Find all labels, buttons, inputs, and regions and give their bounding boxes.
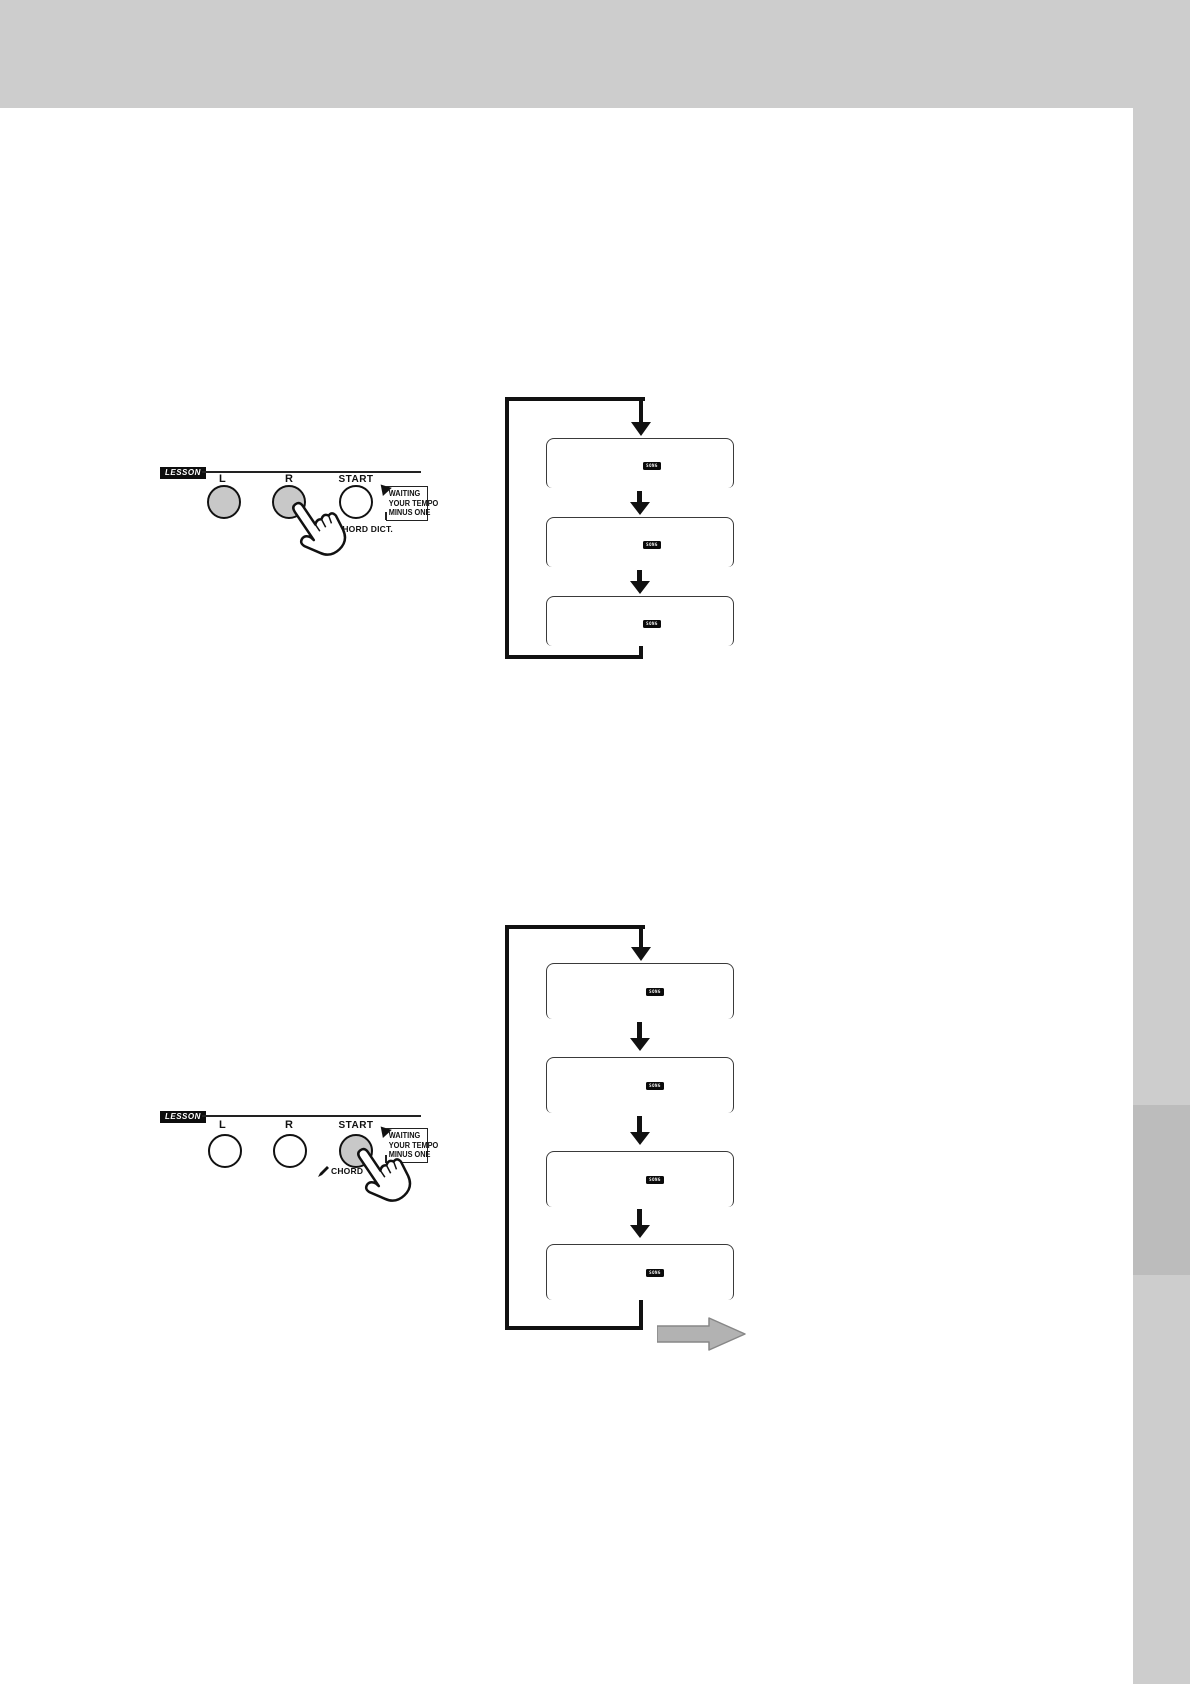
song-badge: SONG (643, 462, 661, 470)
song-badge: SONG (646, 988, 664, 996)
loop-line-left (505, 397, 509, 659)
hand-cursor-icon (338, 1148, 416, 1230)
flow-arrow-shaft (637, 1209, 642, 1225)
panel-top-rule (202, 471, 421, 473)
manual-page: LESSON L R START CHORD DICT. WAITING YOU… (0, 0, 1190, 1684)
loop-line-bottom (505, 655, 643, 659)
song-badge: SONG (646, 1269, 664, 1277)
r-button-label: R (285, 1119, 293, 1131)
lesson-step-box (546, 1151, 734, 1207)
loop-entry-line (639, 925, 643, 949)
flow-arrow-shaft (637, 1116, 642, 1132)
lesson-step-box (546, 963, 734, 1019)
l-button (207, 485, 241, 519)
loop-line-bottom (505, 1326, 643, 1330)
flow-arrow-head-icon (630, 1132, 650, 1145)
lesson-step-box (546, 1057, 734, 1113)
song-badge: SONG (643, 541, 661, 549)
flow-arrow-head-icon (630, 1038, 650, 1051)
callout-line: WAITING (389, 489, 424, 499)
l-button-label: L (219, 1119, 226, 1131)
song-badge: SONG (643, 620, 661, 628)
loop-exit-line (639, 1300, 643, 1326)
lesson-step-box (546, 438, 734, 488)
flow-arrow-head-icon (630, 502, 650, 515)
song-badge: SONG (646, 1082, 664, 1090)
lesson-mode-callout: WAITING YOUR TEMPO MINUS ONE (386, 486, 428, 521)
loop-arrowhead-icon (631, 947, 651, 961)
r-button (273, 1134, 307, 1168)
loop-line-left (505, 925, 509, 1330)
flow-arrow-head-icon (630, 1225, 650, 1238)
pencil-icon (317, 1166, 329, 1178)
l-button-label: L (219, 473, 226, 485)
hand-cursor-icon (273, 502, 351, 584)
l-button (208, 1134, 242, 1168)
callout-line: WAITING (389, 1131, 424, 1141)
lesson-step-box (546, 517, 734, 567)
loop-exit-line (639, 644, 643, 659)
song-badge: SONG (646, 1176, 664, 1184)
flow-arrow-head-icon (630, 581, 650, 594)
lesson-section-label: LESSON (160, 467, 206, 479)
loop-entry-line (639, 397, 643, 424)
lesson-step-box (546, 596, 734, 646)
flow-arrow-shaft (637, 1022, 642, 1038)
loop-line-top (505, 925, 645, 929)
panel-top-rule (202, 1115, 421, 1117)
callout-line: MINUS ONE (389, 508, 424, 518)
callout-line: YOUR TEMPO (389, 499, 424, 509)
loop-line-top (505, 397, 645, 401)
lesson-step-box (546, 1244, 734, 1300)
page-turn-arrow-icon (657, 1317, 749, 1351)
callout-tick (385, 512, 387, 520)
r-button-label: R (285, 473, 293, 485)
page-right-strip (1133, 108, 1190, 1684)
chapter-tab (1133, 1105, 1190, 1275)
lesson-section-label: LESSON (160, 1111, 206, 1123)
page-top-band (0, 0, 1190, 108)
loop-arrowhead-icon (631, 422, 651, 436)
